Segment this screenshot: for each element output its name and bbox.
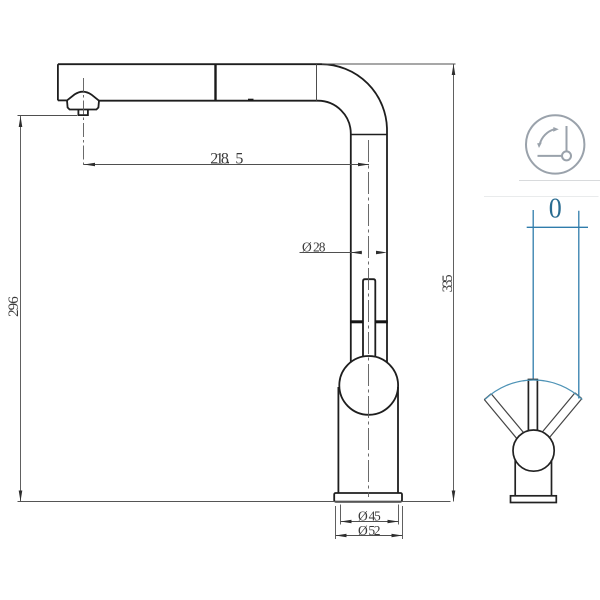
svg-text:0: 0: [549, 194, 562, 225]
svg-text:Ø 45: Ø 45: [358, 508, 381, 523]
svg-text:Ø 52: Ø 52: [358, 523, 381, 538]
svg-text:335: 335: [440, 274, 456, 292]
svg-text:Ø 28: Ø 28: [302, 239, 326, 254]
svg-text:296: 296: [6, 296, 22, 317]
svg-text:218.: 218.: [210, 150, 230, 167]
svg-text:5: 5: [235, 150, 243, 167]
